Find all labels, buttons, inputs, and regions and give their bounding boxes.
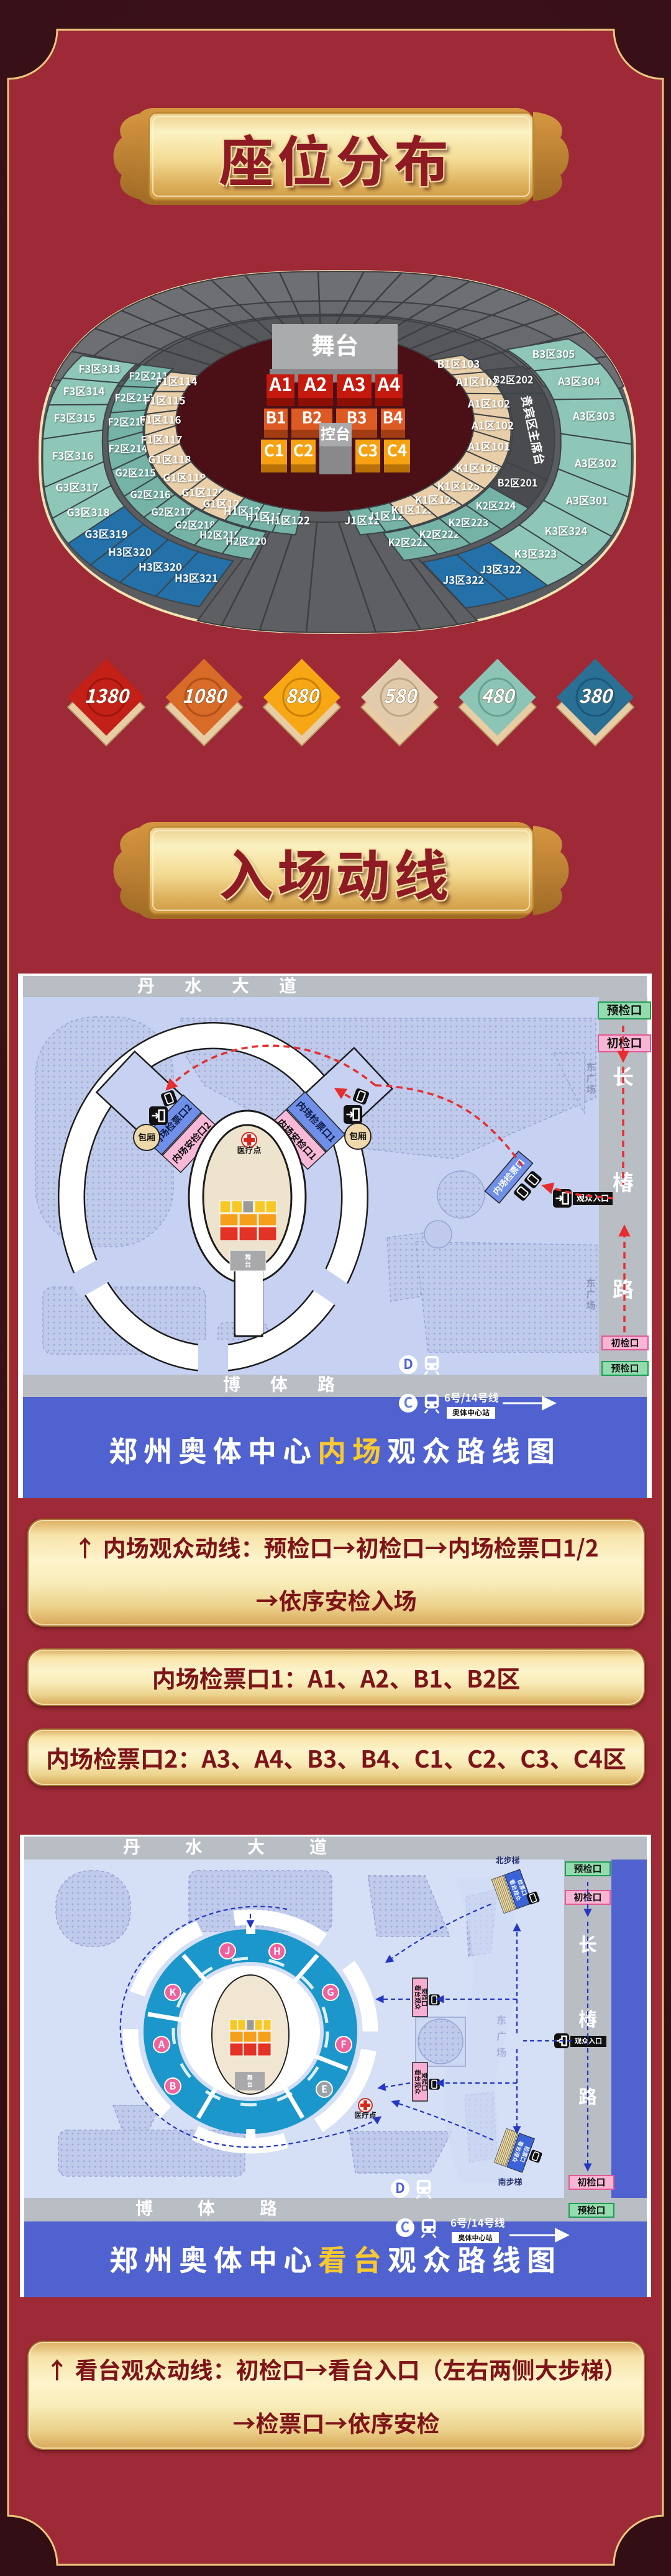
svg-text:奥体中心站: 奥体中心站 — [452, 1407, 490, 1417]
svg-text:体: 体 — [270, 1372, 288, 1396]
svg-text:F1区115: F1区115 — [144, 392, 185, 408]
svg-text:南步梯: 南步梯 — [498, 2176, 522, 2187]
svg-text:A3区301: A3区301 — [565, 492, 608, 508]
svg-text:道: 道 — [309, 1835, 327, 1859]
svg-text:预检口: 预检口 — [611, 1362, 639, 1375]
svg-text:观众入口: 观众入口 — [577, 1192, 609, 1204]
svg-text:480: 480 — [481, 681, 516, 708]
svg-text:G2区216: G2区216 — [130, 486, 170, 501]
svg-text:A1区102: A1区102 — [471, 417, 514, 433]
svg-text:B3区305: B3区305 — [532, 346, 575, 361]
svg-text:B1区103: B1区103 — [437, 356, 480, 371]
svg-text:G1区118: G1区118 — [148, 451, 191, 467]
svg-text:场: 场 — [586, 1083, 595, 1096]
svg-text:A3区304: A3区304 — [557, 373, 600, 389]
svg-text:F3区315: F3区315 — [53, 410, 95, 425]
svg-text:水: 水 — [185, 1835, 203, 1859]
svg-text:J3区322: J3区322 — [480, 561, 522, 577]
svg-text:H: H — [273, 1943, 281, 1958]
svg-text:道: 道 — [279, 974, 296, 998]
svg-text:A1区102: A1区102 — [467, 395, 510, 411]
svg-text:C4: C4 — [387, 438, 407, 461]
svg-text:H3区320: H3区320 — [108, 544, 152, 559]
svg-text:B2区202: B2区202 — [493, 371, 534, 386]
svg-text:6号/14号线: 6号/14号线 — [450, 2215, 505, 2230]
svg-text:A1: A1 — [269, 369, 293, 397]
svg-text:北步梯: 北步梯 — [495, 1854, 519, 1866]
svg-text:D: D — [403, 1354, 413, 1373]
svg-text:G2区215: G2区215 — [115, 464, 155, 479]
svg-text:郑州奥体中心看台观众路线图: 郑州奥体中心看台观众路线图 — [109, 2238, 562, 2279]
svg-text:水: 水 — [185, 974, 202, 998]
svg-text:B2: B2 — [301, 405, 322, 428]
svg-text:控台: 控台 — [321, 422, 350, 444]
svg-text:大: 大 — [232, 974, 249, 998]
svg-text:大: 大 — [247, 1835, 265, 1859]
svg-text:J3区322: J3区322 — [443, 572, 485, 587]
svg-text:A3区303: A3区303 — [572, 408, 615, 423]
svg-text:C2: C2 — [293, 438, 313, 461]
svg-text:B4: B4 — [382, 405, 403, 428]
svg-text:A: A — [158, 2036, 165, 2051]
svg-text:K3区324: K3区324 — [545, 523, 588, 538]
svg-text:医疗点: 医疗点 — [354, 2110, 377, 2120]
svg-text:台: 台 — [245, 1260, 251, 1269]
svg-text:包厢: 包厢 — [138, 1131, 155, 1144]
svg-text:广: 广 — [496, 2028, 506, 2043]
svg-text:C: C — [404, 1392, 413, 1412]
svg-text:丹: 丹 — [137, 974, 155, 998]
svg-text:A2: A2 — [304, 369, 327, 397]
svg-text:K: K — [170, 1984, 177, 1999]
svg-text:F1区117: F1区117 — [140, 432, 182, 447]
svg-text:长: 长 — [613, 1060, 634, 1091]
svg-text:体: 体 — [198, 2195, 215, 2220]
svg-text:包厢: 包厢 — [349, 1130, 367, 1142]
svg-text:F1区116: F1区116 — [139, 412, 181, 427]
svg-text:F3区314: F3区314 — [63, 383, 104, 399]
svg-text:H3区321: H3区321 — [175, 570, 218, 585]
svg-text:场: 场 — [496, 2044, 506, 2059]
svg-text:580: 580 — [383, 681, 419, 708]
svg-text:H1区122: H1区122 — [267, 512, 310, 528]
svg-text:郑州奥体中心内场观众路线图: 郑州奥体中心内场观众路线图 — [109, 1429, 561, 1470]
svg-text:场: 场 — [586, 1299, 595, 1312]
svg-text:博: 博 — [223, 1372, 240, 1396]
svg-text:预检口: 预检口 — [606, 1001, 642, 1018]
svg-text:E: E — [321, 2081, 327, 2095]
svg-text:路: 路 — [317, 1372, 335, 1396]
svg-text:D: D — [395, 2177, 405, 2197]
svg-text:B1: B1 — [265, 405, 286, 428]
svg-text:台: 台 — [247, 2080, 252, 2088]
svg-text:医疗点: 医疗点 — [237, 1144, 261, 1155]
svg-text:1380: 1380 — [84, 681, 131, 708]
svg-text:初检口: 初检口 — [577, 2176, 605, 2189]
svg-text:安检口: 安检口 — [420, 1988, 429, 2007]
svg-text:B2区201: B2区201 — [498, 474, 538, 489]
svg-text:A4: A4 — [377, 369, 401, 397]
svg-text:F3区313: F3区313 — [78, 361, 120, 376]
svg-text:B: B — [170, 2077, 176, 2092]
svg-text:880: 880 — [285, 681, 321, 708]
svg-text:1080: 1080 — [182, 681, 229, 708]
svg-text:C3: C3 — [358, 438, 378, 461]
svg-text:安检口: 安检口 — [420, 2072, 429, 2091]
svg-text:A1区102: A1区102 — [455, 374, 498, 389]
svg-text:初检口: 初检口 — [606, 1034, 642, 1051]
svg-text:F3区316: F3区316 — [52, 448, 93, 463]
svg-text:A3区302: A3区302 — [574, 455, 617, 471]
svg-text:K2区224: K2区224 — [476, 497, 516, 512]
svg-text:380: 380 — [578, 681, 614, 708]
svg-text:东: 东 — [496, 2012, 506, 2027]
svg-text:路: 路 — [613, 1273, 634, 1303]
svg-text:H2区220: H2区220 — [226, 533, 267, 548]
svg-text:6号/14号线: 6号/14号线 — [444, 1390, 499, 1405]
svg-text:C1: C1 — [264, 438, 284, 461]
svg-text:博: 博 — [135, 2195, 153, 2220]
svg-text:K3区323: K3区323 — [514, 546, 557, 561]
svg-text:舞台: 舞台 — [311, 327, 358, 361]
svg-text:G: G — [327, 1984, 334, 1999]
svg-text:丹: 丹 — [123, 1835, 140, 1859]
svg-text:F: F — [340, 2036, 346, 2051]
svg-text:G3区318: G3区318 — [66, 504, 109, 520]
svg-text:C: C — [401, 2217, 409, 2236]
svg-text:A3: A3 — [342, 369, 366, 397]
svg-text:G3区319: G3区319 — [84, 526, 127, 541]
svg-text:G3区317: G3区317 — [55, 479, 98, 495]
svg-text:预检口: 预检口 — [577, 2203, 605, 2217]
svg-text:椿: 椿 — [613, 1166, 634, 1196]
svg-text:初检口: 初检口 — [611, 1336, 639, 1349]
svg-text:路: 路 — [260, 2195, 277, 2220]
svg-text:F1区114: F1区114 — [155, 373, 197, 389]
svg-text:预检口: 预检口 — [573, 1862, 601, 1875]
svg-text:J: J — [224, 1942, 230, 1957]
